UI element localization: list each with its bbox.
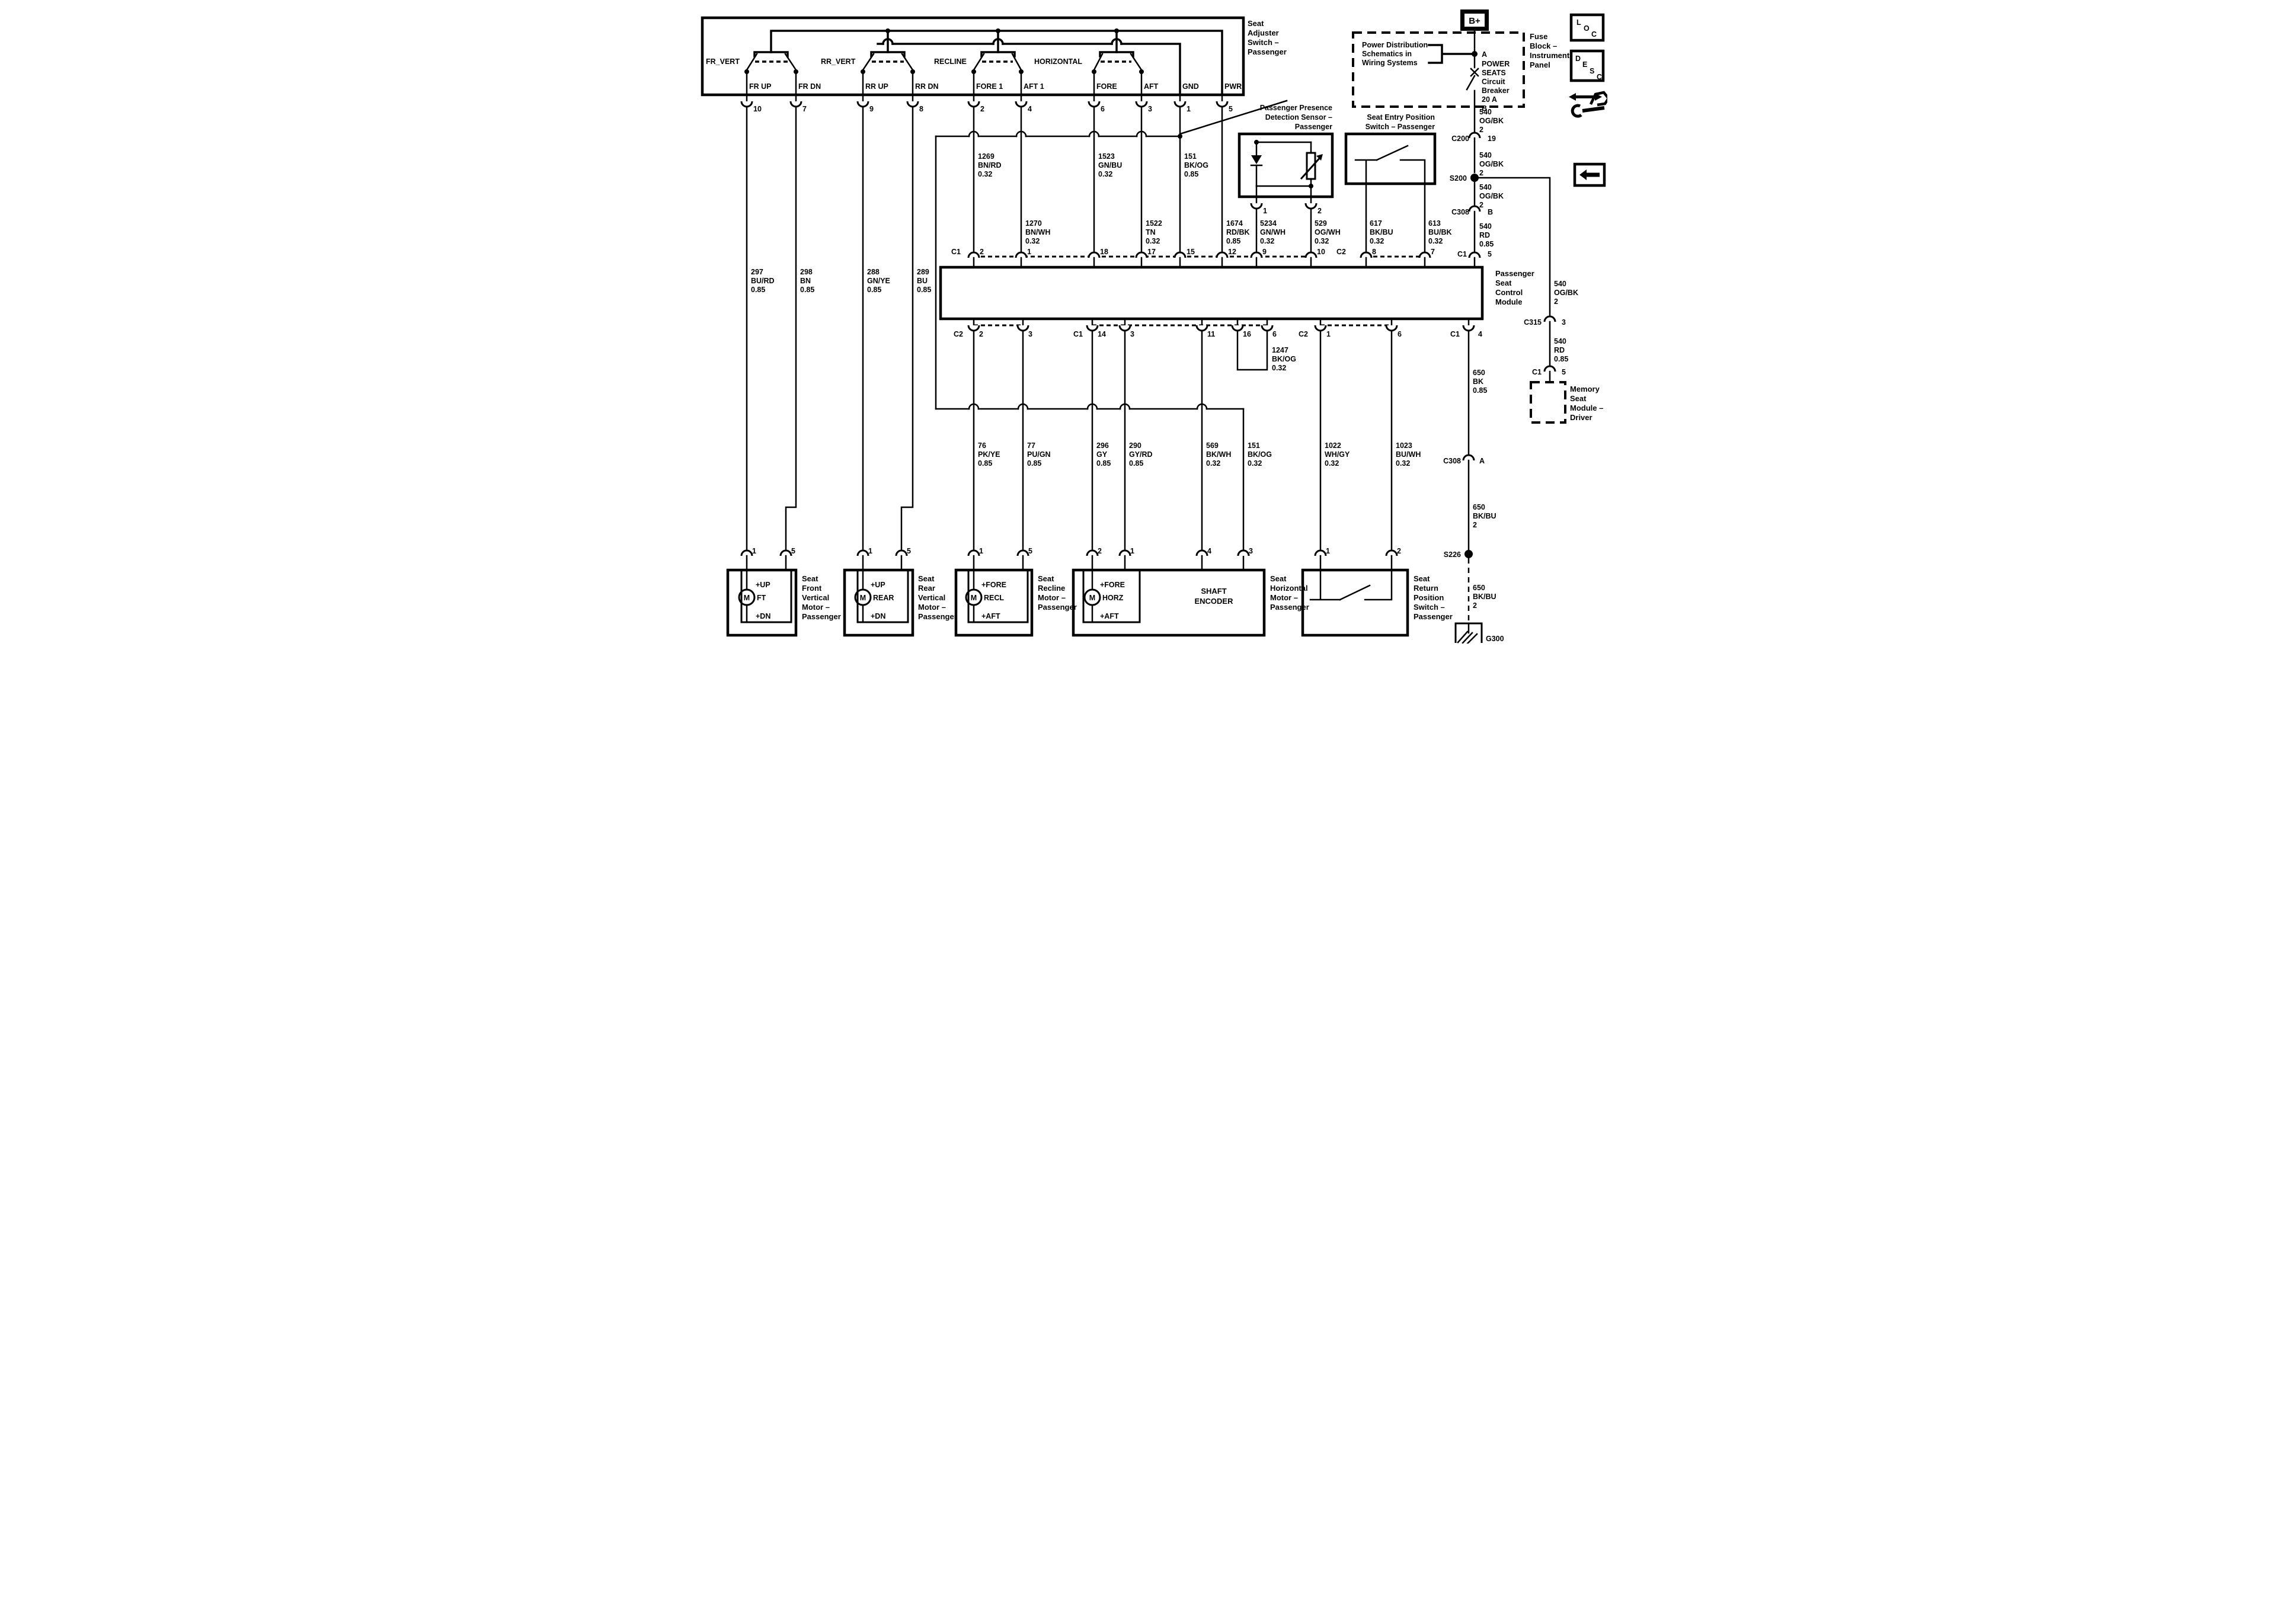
svg-text:288: 288 bbox=[867, 268, 880, 276]
svg-text:10: 10 bbox=[1317, 248, 1325, 256]
diode-icon bbox=[1251, 155, 1262, 186]
wire-540-rd: 540RD0.85 bbox=[1479, 222, 1494, 248]
svg-text:Breaker: Breaker bbox=[1482, 87, 1510, 95]
module-title: Passenger Seat Control Module bbox=[1495, 269, 1534, 306]
svg-text:Control: Control bbox=[1495, 288, 1523, 297]
svg-text:297: 297 bbox=[751, 268, 763, 276]
wire-1523-label: 1523GN/BU0.32 bbox=[1098, 152, 1122, 178]
module-bot-c1b: C1 bbox=[1450, 330, 1460, 338]
svg-text:151: 151 bbox=[1248, 441, 1260, 450]
motor-dn-front: +DN bbox=[756, 612, 770, 620]
svg-text:4: 4 bbox=[1028, 105, 1032, 113]
svg-text:WH/GY: WH/GY bbox=[1325, 450, 1350, 459]
svg-text:Return: Return bbox=[1414, 584, 1438, 593]
svg-text:Motor –: Motor – bbox=[918, 603, 946, 612]
svg-text:3: 3 bbox=[1028, 330, 1032, 338]
svg-text:540: 540 bbox=[1554, 337, 1566, 345]
svg-text:0.85: 0.85 bbox=[1129, 459, 1143, 468]
motor-m-rear: M bbox=[859, 594, 865, 602]
svg-text:7: 7 bbox=[1431, 248, 1435, 256]
svg-text:Passenger: Passenger bbox=[802, 612, 841, 621]
svg-text:2: 2 bbox=[1479, 169, 1483, 177]
connector-c308-a-pin: A bbox=[1479, 457, 1485, 465]
svg-text:0.32: 0.32 bbox=[1428, 237, 1443, 245]
svg-text:Passenger: Passenger bbox=[1294, 123, 1332, 131]
memory-seat-module-box bbox=[1531, 382, 1565, 422]
svg-text:76: 76 bbox=[978, 441, 986, 450]
svg-text:2: 2 bbox=[1479, 201, 1483, 209]
svg-text:10: 10 bbox=[753, 105, 762, 113]
wire-540-ogbk-1: 540OG/BK2 bbox=[1479, 108, 1504, 134]
svg-text:OG/WH: OG/WH bbox=[1315, 228, 1341, 236]
wire-617-label: 617BK/BU0.32 bbox=[1370, 219, 1393, 245]
wire-540-ogbk-3: 540OG/BK2 bbox=[1479, 183, 1504, 209]
module-top-c2: C2 bbox=[1336, 248, 1346, 256]
svg-text:5: 5 bbox=[907, 547, 911, 555]
svg-text:0.32: 0.32 bbox=[1248, 459, 1262, 468]
motor-tag-front: FT bbox=[757, 594, 766, 602]
terminal-rr-up: RR UP bbox=[865, 82, 888, 91]
svg-text:Switch – Passenger: Switch – Passenger bbox=[1365, 123, 1435, 131]
svg-text:Vertical: Vertical bbox=[918, 593, 945, 602]
svg-text:0.32: 0.32 bbox=[1396, 459, 1410, 468]
svg-text:Position: Position bbox=[1414, 593, 1444, 602]
svg-text:Wiring Systems: Wiring Systems bbox=[1362, 59, 1418, 67]
svg-text:1023: 1023 bbox=[1396, 441, 1412, 450]
terminal-pwr: PWR bbox=[1224, 82, 1242, 91]
svg-text:S: S bbox=[1590, 67, 1594, 75]
svg-text:0.85: 0.85 bbox=[1027, 459, 1041, 468]
svg-text:Recline: Recline bbox=[1038, 584, 1065, 593]
ground-chain: 650BK0.85 C308 A 650BK/BU2 S226 650BK/BU… bbox=[1443, 331, 1504, 644]
svg-text:1674: 1674 bbox=[1226, 219, 1243, 228]
svg-text:L: L bbox=[1576, 18, 1581, 27]
svg-text:290: 290 bbox=[1129, 441, 1141, 450]
presence-sensor-title: Passenger Presence Detection Sensor – Pa… bbox=[1259, 104, 1332, 131]
svg-text:OG/BK: OG/BK bbox=[1479, 192, 1504, 200]
motor-aft-recl: +AFT bbox=[981, 612, 1000, 620]
connector-c200-pin: 19 bbox=[1488, 135, 1496, 143]
svg-text:0.85: 0.85 bbox=[1096, 459, 1111, 468]
svg-text:Seat: Seat bbox=[1414, 574, 1430, 583]
b-plus-label: B+ bbox=[1469, 16, 1480, 26]
seat-adjuster-switch: FR_VERT RR_VERT RECLINE HORIZONTAL FR UP… bbox=[702, 18, 1287, 113]
svg-text:1: 1 bbox=[1130, 547, 1134, 555]
svg-text:BK/OG: BK/OG bbox=[1248, 450, 1272, 459]
svg-text:0.85: 0.85 bbox=[1554, 355, 1568, 363]
svg-text:TN: TN bbox=[1146, 228, 1156, 236]
svg-text:8: 8 bbox=[919, 105, 923, 113]
svg-text:5: 5 bbox=[1229, 105, 1233, 113]
svg-text:1247: 1247 bbox=[1272, 346, 1288, 354]
wire-151b-label: 151BK/OG0.32 bbox=[1248, 441, 1272, 468]
svg-text:0.85: 0.85 bbox=[867, 286, 881, 294]
svg-text:1269: 1269 bbox=[978, 152, 994, 161]
svg-text:2: 2 bbox=[1473, 601, 1477, 610]
svg-text:3: 3 bbox=[1130, 330, 1134, 338]
svg-text:0.32: 0.32 bbox=[978, 170, 992, 178]
svg-text:Detection Sensor –: Detection Sensor – bbox=[1265, 113, 1332, 121]
svg-text:0.32: 0.32 bbox=[1025, 237, 1040, 245]
svg-text:Front: Front bbox=[802, 584, 822, 593]
svg-text:BU/WH: BU/WH bbox=[1396, 450, 1421, 459]
return-switch-label: Seat Return Position Switch – Passenger bbox=[1414, 574, 1453, 621]
svg-text:6: 6 bbox=[1398, 330, 1402, 338]
svg-text:0.85: 0.85 bbox=[800, 286, 814, 294]
seat-rear-vertical-motor: 15 M REAR +UP +DN Seat Rear Vertical Mot… bbox=[845, 547, 957, 635]
motor-aft-horz: +AFT bbox=[1100, 612, 1119, 620]
svg-text:BK/BU: BK/BU bbox=[1473, 512, 1496, 520]
svg-text:298: 298 bbox=[800, 268, 813, 276]
svg-text:BU/RD: BU/RD bbox=[751, 277, 775, 285]
circuit-breaker-icon bbox=[1467, 69, 1478, 133]
terminal-gnd: GND bbox=[1182, 82, 1199, 91]
svg-text:BN/WH: BN/WH bbox=[1025, 228, 1050, 236]
svg-text:9: 9 bbox=[869, 105, 874, 113]
svg-text:15: 15 bbox=[1187, 248, 1195, 256]
svg-text:Instrument: Instrument bbox=[1530, 51, 1570, 60]
wire-1022-label: 1022WH/GY0.32 bbox=[1325, 441, 1350, 468]
wire-529-label: 529OG/WH0.32 bbox=[1315, 219, 1341, 245]
svg-text:Passenger: Passenger bbox=[918, 612, 957, 621]
module-top-hooks bbox=[968, 252, 1480, 267]
svg-text:2: 2 bbox=[1479, 126, 1483, 134]
terminal-aft: AFT bbox=[1144, 82, 1159, 91]
svg-text:0.32: 0.32 bbox=[1098, 170, 1112, 178]
svg-text:2: 2 bbox=[1098, 547, 1102, 555]
motor-tag-recl: RECL bbox=[984, 594, 1004, 602]
svg-text:1: 1 bbox=[979, 547, 983, 555]
wire-297-label: 297BU/RD0.85 bbox=[751, 268, 775, 294]
svg-text:529: 529 bbox=[1315, 219, 1327, 228]
motor-up-rear: +UP bbox=[871, 581, 885, 589]
wire-77-label: 77PU/GN0.85 bbox=[1027, 441, 1051, 468]
svg-text:77: 77 bbox=[1027, 441, 1035, 450]
svg-text:OG/BK: OG/BK bbox=[1479, 117, 1504, 125]
svg-text:2: 2 bbox=[980, 248, 984, 256]
svg-text:C: C bbox=[1597, 73, 1602, 81]
wire-290-label: 290GY/RD0.85 bbox=[1129, 441, 1153, 468]
svg-text:296: 296 bbox=[1096, 441, 1109, 450]
svg-text:OG/BK: OG/BK bbox=[1554, 289, 1578, 297]
back-arrow-icon[interactable] bbox=[1575, 164, 1604, 185]
switch-fr-vert[interactable] bbox=[744, 52, 798, 74]
svg-text:A: A bbox=[1482, 50, 1487, 59]
svg-text:Panel: Panel bbox=[1530, 60, 1550, 69]
svg-text:Seat: Seat bbox=[1248, 19, 1264, 28]
svg-text:1270: 1270 bbox=[1025, 219, 1042, 228]
connector-c308-a: C308 bbox=[1443, 457, 1461, 465]
svg-text:2: 2 bbox=[979, 330, 983, 338]
seat-horizontal-motor: 21 43 M HORZ +FORE +AFT SHAFT ENCODER Se… bbox=[1073, 547, 1309, 635]
wiring-diagram: FR_VERT RR_VERT RECLINE HORIZONTAL FR UP… bbox=[689, 0, 1607, 644]
svg-text:GN/BU: GN/BU bbox=[1098, 161, 1122, 169]
fuse-block-title: Fuse Block – Instrument Panel bbox=[1530, 32, 1570, 69]
svg-text:540: 540 bbox=[1479, 183, 1492, 191]
module-bot-c1: C1 bbox=[1073, 330, 1083, 338]
svg-text:Seat: Seat bbox=[802, 574, 818, 583]
terminal-fore1: FORE 1 bbox=[976, 82, 1003, 91]
rear-motor-label: Seat Rear Vertical Motor – Passenger bbox=[918, 574, 957, 621]
svg-text:14: 14 bbox=[1098, 330, 1106, 338]
motor-fore-recl: +FORE bbox=[981, 581, 1006, 589]
splice-s226: S226 bbox=[1443, 550, 1460, 559]
svg-text:Vertical: Vertical bbox=[802, 593, 829, 602]
svg-text:0.85: 0.85 bbox=[1226, 237, 1240, 245]
svg-text:GN/WH: GN/WH bbox=[1260, 228, 1285, 236]
svg-text:0.85: 0.85 bbox=[917, 286, 931, 294]
shaft-encoder-label: SHAFT ENCODER bbox=[1194, 587, 1233, 606]
wire-1674-label: 1674RD/BK0.85 bbox=[1226, 219, 1250, 245]
svg-text:Module: Module bbox=[1495, 297, 1523, 306]
svg-text:Passenger: Passenger bbox=[1248, 47, 1287, 56]
loc-icon[interactable]: LOC bbox=[1571, 15, 1603, 40]
motor-up-front: +UP bbox=[756, 581, 770, 589]
svg-text:E: E bbox=[1582, 60, 1587, 69]
svg-text:6: 6 bbox=[1101, 105, 1105, 113]
svg-text:650: 650 bbox=[1473, 584, 1485, 592]
svg-text:0.32: 0.32 bbox=[1206, 459, 1220, 468]
wire-76-label: 76PK/YE0.85 bbox=[978, 441, 1000, 468]
switch-label-horizontal: HORIZONTAL bbox=[1034, 57, 1082, 66]
svg-text:289: 289 bbox=[917, 268, 929, 276]
svg-text:Passenger: Passenger bbox=[1414, 612, 1453, 621]
svg-text:4: 4 bbox=[1207, 547, 1211, 555]
wire-1270-label: 1270BN/WH0.32 bbox=[1025, 219, 1050, 245]
svg-text:2: 2 bbox=[1554, 297, 1558, 306]
svg-text:Driver: Driver bbox=[1570, 413, 1593, 422]
svg-text:0.32: 0.32 bbox=[1260, 237, 1274, 245]
svg-text:SEATS: SEATS bbox=[1482, 69, 1506, 77]
svg-text:0.32: 0.32 bbox=[1325, 459, 1339, 468]
wire-1269-label: 1269BN/RD0.32 bbox=[978, 152, 1002, 178]
svg-text:RD: RD bbox=[1479, 231, 1490, 239]
svg-text:BN/RD: BN/RD bbox=[978, 161, 1002, 169]
svg-text:0.85: 0.85 bbox=[1184, 170, 1198, 178]
svg-text:0.32: 0.32 bbox=[1370, 237, 1384, 245]
switch-label-recline: RECLINE bbox=[934, 57, 967, 66]
svg-text:6: 6 bbox=[1272, 330, 1277, 338]
svg-text:PK/YE: PK/YE bbox=[978, 450, 1000, 459]
terminal-fore: FORE bbox=[1096, 82, 1117, 91]
svg-text:569: 569 bbox=[1206, 441, 1219, 450]
svg-text:BN: BN bbox=[800, 277, 811, 285]
motor-tag-horz: HORZ bbox=[1102, 594, 1124, 602]
sensor-pin-2: 2 bbox=[1318, 207, 1322, 215]
wire-540-ogbk-2: 540OG/BK2 bbox=[1479, 151, 1504, 177]
svg-text:12: 12 bbox=[1228, 248, 1236, 256]
splice-s200: S200 bbox=[1449, 174, 1466, 183]
switch-rr-vert[interactable] bbox=[861, 52, 915, 74]
svg-text:0.85: 0.85 bbox=[751, 286, 765, 294]
power-distribution-note: Power Distribution Schematics in Wiring … bbox=[1362, 41, 1475, 67]
svg-text:Adjuster: Adjuster bbox=[1248, 28, 1279, 37]
connector-c1-5: C1 bbox=[1457, 250, 1467, 258]
seat-recline-motor: 15 M RECL +FORE +AFT Seat Recline Motor … bbox=[956, 547, 1077, 635]
svg-text:Fuse: Fuse bbox=[1530, 32, 1547, 41]
switch-pin-connectors: 107 98 24 63 15 bbox=[741, 95, 1233, 113]
wire-1023-label: 1023BU/WH0.32 bbox=[1396, 441, 1421, 468]
svg-text:Motor –: Motor – bbox=[802, 603, 830, 612]
svg-text:9: 9 bbox=[1262, 248, 1267, 256]
svg-text:Block –: Block – bbox=[1530, 41, 1557, 50]
svg-text:5: 5 bbox=[791, 547, 795, 555]
svg-text:1: 1 bbox=[1027, 248, 1031, 256]
svg-text:BK: BK bbox=[1473, 377, 1483, 386]
svg-text:540: 540 bbox=[1554, 280, 1566, 288]
svg-text:Seat: Seat bbox=[918, 574, 935, 583]
connector-c1-5b: C1 bbox=[1532, 368, 1542, 376]
svg-text:ENCODER: ENCODER bbox=[1194, 597, 1233, 606]
svg-text:151: 151 bbox=[1184, 152, 1197, 161]
svg-text:Module –: Module – bbox=[1570, 404, 1603, 412]
wire-296-label: 296GY0.85 bbox=[1096, 441, 1111, 468]
svg-text:OG/BK: OG/BK bbox=[1479, 160, 1504, 168]
module-top-c1: C1 bbox=[951, 248, 961, 256]
svg-text:BU/BK: BU/BK bbox=[1428, 228, 1452, 236]
svg-text:16: 16 bbox=[1243, 330, 1251, 338]
connector-c315-pin: 3 bbox=[1562, 318, 1566, 327]
switch-label-rr-vert: RR_VERT bbox=[821, 57, 856, 66]
recline-motor-label: Seat Recline Motor – Passenger bbox=[1038, 574, 1077, 612]
ground-g300-label: G300 bbox=[1486, 635, 1504, 643]
wire-650bu-label-2: 650BK/BU2 bbox=[1473, 584, 1496, 610]
svg-text:1: 1 bbox=[1187, 105, 1191, 113]
svg-text:Seat Entry Position: Seat Entry Position bbox=[1367, 113, 1435, 121]
svg-text:Motor –: Motor – bbox=[1038, 593, 1066, 602]
wrench-arrows-icon[interactable] bbox=[1569, 92, 1607, 116]
terminal-fr-dn: FR DN bbox=[798, 82, 821, 91]
memory-seat-branch: 540OG/BK2 C315 3 540RD0.85 C1 5 Memory S… bbox=[1524, 280, 1603, 422]
svg-text:Memory: Memory bbox=[1570, 385, 1600, 393]
module-bot-c2b: C2 bbox=[1299, 330, 1308, 338]
wire-650-label: 650BK0.85 bbox=[1473, 369, 1487, 395]
connector-c1-5-pin: 5 bbox=[1488, 250, 1492, 258]
entry-switch-title: Seat Entry Position Switch – Passenger bbox=[1365, 113, 1435, 131]
svg-text:Circuit: Circuit bbox=[1482, 78, 1505, 86]
svg-text:2: 2 bbox=[980, 105, 984, 113]
wire-650bu-label-1: 650BK/BU2 bbox=[1473, 503, 1496, 529]
motor-m-front: M bbox=[743, 594, 749, 602]
terminal-rr-dn: RR DN bbox=[915, 82, 939, 91]
svg-text:Passenger: Passenger bbox=[1495, 269, 1534, 278]
wire-5234-label: 5234GN/WH0.32 bbox=[1260, 219, 1285, 245]
switch-recline[interactable] bbox=[971, 52, 1024, 74]
seat-return-position-switch: 12 Seat Return Position Switch – Passeng… bbox=[1303, 547, 1453, 635]
module-box[interactable] bbox=[941, 267, 1482, 319]
terminal-fr-up: FR UP bbox=[749, 82, 772, 91]
switch-label-fr-vert: FR_VERT bbox=[706, 57, 740, 66]
svg-text:5: 5 bbox=[1028, 547, 1032, 555]
wire-151a-label: 151BK/OG0.85 bbox=[1184, 152, 1208, 178]
svg-text:BK/BU: BK/BU bbox=[1370, 228, 1393, 236]
svg-text:POWER: POWER bbox=[1482, 60, 1510, 68]
wire-540-ogbk-4: 540OG/BK2 bbox=[1554, 280, 1578, 306]
motor-m-recl: M bbox=[970, 594, 976, 602]
svg-text:Seat: Seat bbox=[1270, 574, 1287, 583]
svg-text:Seat: Seat bbox=[1038, 574, 1054, 583]
svg-text:Seat: Seat bbox=[1570, 394, 1587, 403]
svg-text:650: 650 bbox=[1473, 369, 1485, 377]
svg-text:1: 1 bbox=[1326, 330, 1331, 338]
wire-569-label: 569BK/WH0.32 bbox=[1206, 441, 1231, 468]
svg-text:0.32: 0.32 bbox=[1146, 237, 1160, 245]
svg-text:5234: 5234 bbox=[1260, 219, 1277, 228]
motor-tag-rear: REAR bbox=[873, 594, 894, 602]
svg-text:RD/BK: RD/BK bbox=[1226, 228, 1250, 236]
wire-540-rd-2: 540RD0.85 bbox=[1554, 337, 1568, 363]
svg-text:Switch –: Switch – bbox=[1248, 38, 1279, 47]
svg-text:1: 1 bbox=[868, 547, 872, 555]
motor-fore-horz: +FORE bbox=[1100, 581, 1125, 589]
connector-c200: C200 bbox=[1451, 135, 1469, 143]
svg-text:BK/WH: BK/WH bbox=[1206, 450, 1231, 459]
svg-text:1523: 1523 bbox=[1098, 152, 1115, 161]
svg-text:17: 17 bbox=[1147, 248, 1156, 256]
svg-text:0.85: 0.85 bbox=[978, 459, 992, 468]
terminal-aft1: AFT 1 bbox=[1024, 82, 1044, 91]
svg-text:540: 540 bbox=[1479, 108, 1492, 116]
svg-text:SHAFT: SHAFT bbox=[1201, 587, 1226, 596]
svg-text:613: 613 bbox=[1428, 219, 1441, 228]
switch-horizontal[interactable] bbox=[1092, 52, 1144, 74]
svg-text:RD: RD bbox=[1554, 346, 1565, 354]
svg-text:Passenger: Passenger bbox=[1038, 603, 1077, 612]
svg-text:1: 1 bbox=[752, 547, 756, 555]
ground-g300-icon bbox=[1456, 623, 1482, 644]
wire-298-label: 298BN0.85 bbox=[800, 268, 814, 294]
seat-front-vertical-motor: 15 M FT +UP +DN Seat Front Vertical Moto… bbox=[728, 547, 841, 635]
svg-text:Motor –: Motor – bbox=[1270, 593, 1298, 602]
svg-text:GY: GY bbox=[1096, 450, 1108, 459]
svg-text:Seat: Seat bbox=[1495, 279, 1512, 287]
seat-adjuster-title: Seat Adjuster Switch – Passenger bbox=[1248, 19, 1287, 56]
connector-c308-b: C308 bbox=[1451, 208, 1469, 216]
svg-text:0.85: 0.85 bbox=[1473, 386, 1487, 395]
connector-c1-5b-pin: 5 bbox=[1562, 368, 1566, 376]
svg-text:650: 650 bbox=[1473, 503, 1485, 511]
motor-m-horz: M bbox=[1089, 594, 1095, 602]
svg-text:1022: 1022 bbox=[1325, 441, 1341, 450]
sensor-pin-1: 1 bbox=[1263, 207, 1267, 215]
svg-text:18: 18 bbox=[1100, 248, 1108, 256]
svg-text:Rear: Rear bbox=[918, 584, 935, 593]
connector-c308-b-pin: B bbox=[1488, 208, 1493, 216]
breaker-label: A POWER SEATS Circuit Breaker 20 A B bbox=[1482, 50, 1510, 113]
desc-icon[interactable]: DESC bbox=[1571, 51, 1603, 81]
svg-text:8: 8 bbox=[1372, 248, 1376, 256]
wires-module-to-actuators: 76PK/YE0.85 77PU/GN0.85 296GY0.85 290GY/… bbox=[974, 331, 1421, 550]
svg-text:7: 7 bbox=[802, 105, 807, 113]
svg-text:2: 2 bbox=[1473, 521, 1477, 529]
variable-resistor-icon bbox=[1301, 142, 1323, 186]
wire-613-label: 613BU/BK0.32 bbox=[1428, 219, 1452, 245]
svg-text:GY/RD: GY/RD bbox=[1129, 450, 1153, 459]
svg-text:540: 540 bbox=[1479, 222, 1492, 231]
svg-text:O: O bbox=[1584, 24, 1590, 33]
svg-text:540: 540 bbox=[1479, 151, 1492, 159]
actuator-wire-caps bbox=[1238, 550, 1249, 556]
wire-288-label: 288GN/YE0.85 bbox=[867, 268, 890, 294]
wire-289-label: 289BU0.85 bbox=[917, 268, 931, 294]
wiring-diagram-page: FR_VERT RR_VERT RECLINE HORIZONTAL FR UP… bbox=[689, 0, 1607, 644]
svg-text:0.32: 0.32 bbox=[1272, 364, 1286, 372]
svg-text:2: 2 bbox=[1397, 547, 1401, 555]
svg-text:1522: 1522 bbox=[1146, 219, 1162, 228]
svg-text:BK/OG: BK/OG bbox=[1184, 161, 1208, 169]
seat-control-module: C1 21 1817 1512 910 C2 87 Passenger Seat… bbox=[941, 248, 1534, 338]
svg-text:1: 1 bbox=[1326, 547, 1330, 555]
